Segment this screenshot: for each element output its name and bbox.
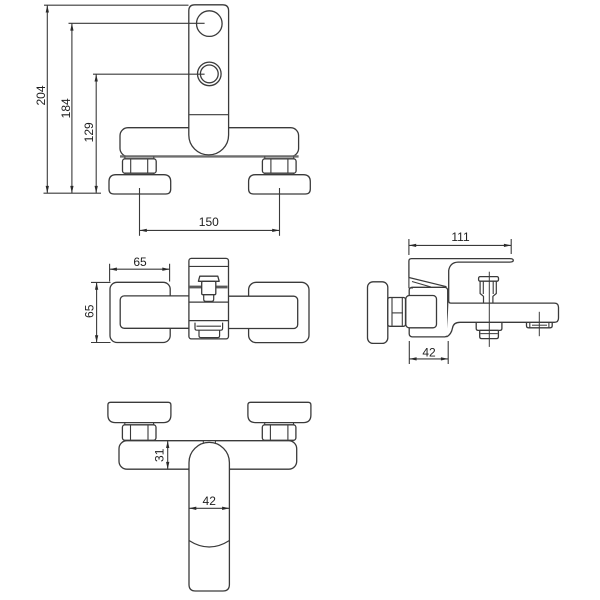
svg-text:42: 42 xyxy=(422,345,436,359)
svg-text:65: 65 xyxy=(83,304,97,318)
svg-text:111: 111 xyxy=(451,230,470,244)
svg-text:129: 129 xyxy=(82,122,96,142)
svg-text:204: 204 xyxy=(34,85,48,105)
svg-text:42: 42 xyxy=(203,494,217,508)
svg-text:65: 65 xyxy=(133,255,147,269)
svg-text:31: 31 xyxy=(152,448,166,462)
svg-text:150: 150 xyxy=(199,215,219,229)
svg-text:184: 184 xyxy=(59,98,73,118)
